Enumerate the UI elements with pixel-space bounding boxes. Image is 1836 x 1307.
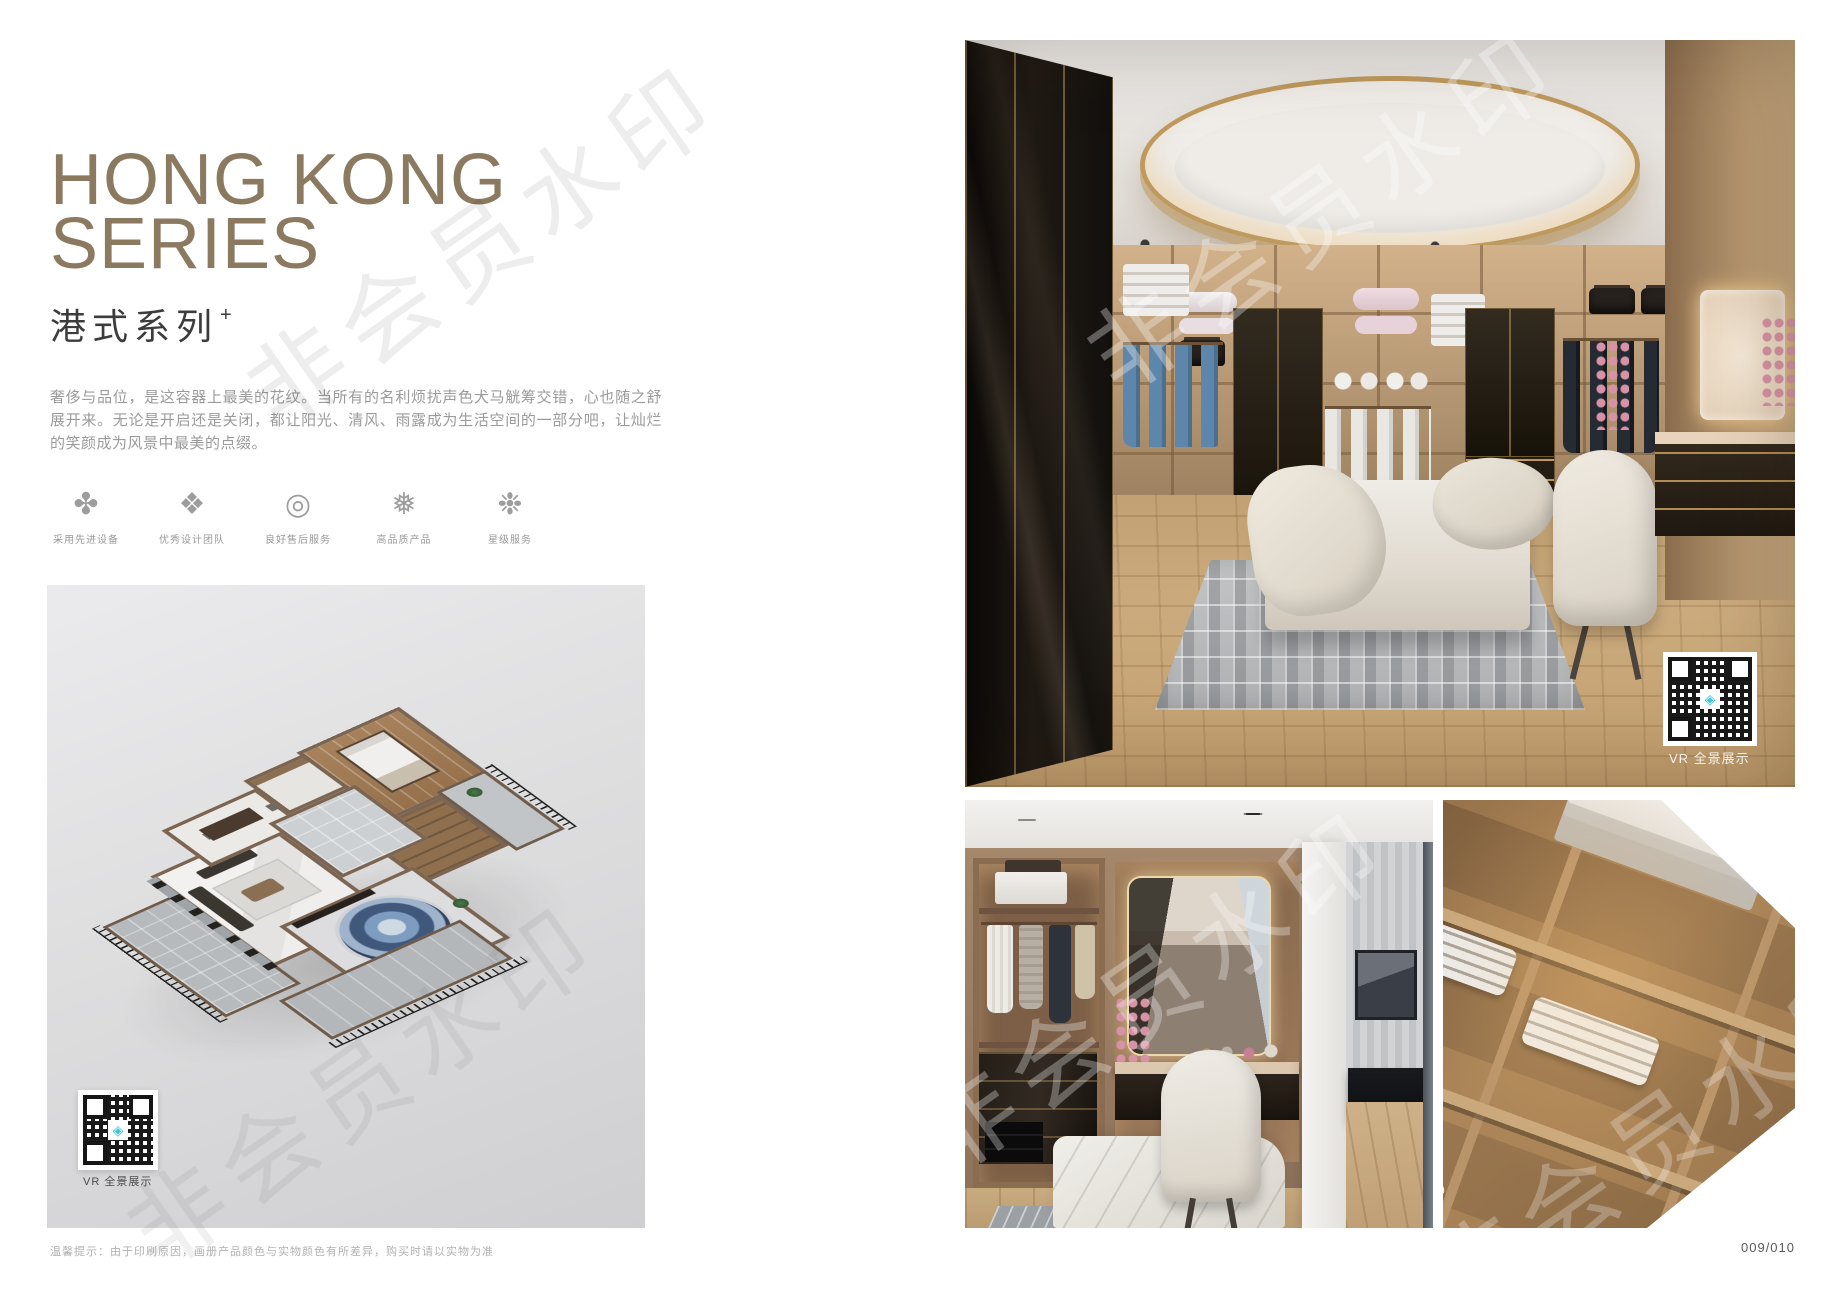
snowflake-icon: ❅ [368, 487, 440, 523]
print-disclaimer-note: 温馨提示：由于印刷原因，画册产品颜色与实物颜色有所差异，购买时请以实物为准 [50, 1243, 494, 1259]
qr-finder-icon [1728, 657, 1752, 681]
feature-label: 高品质产品 [368, 531, 440, 546]
floorplan-figure: ◈ VR 全景展示 [47, 585, 645, 1228]
feature-star-service: ❉ 星级服务 [474, 487, 546, 546]
white-storage-box [995, 872, 1067, 904]
series-subtitle-text: 港式系列 [50, 306, 218, 347]
vr-caption: VR 全景展示 [83, 1173, 152, 1189]
qr-cube-logo-icon: ◈ [108, 1120, 128, 1140]
feature-design-team: ❖ 优秀设计团队 [156, 487, 228, 546]
feature-label: 星级服务 [474, 531, 546, 546]
pink-flowers [1115, 996, 1151, 1066]
qr-finder-icon [83, 1141, 107, 1165]
qr-finder-icon [129, 1095, 153, 1119]
series-title-en-line1: HONG KONG [50, 148, 662, 212]
feature-equipment: ✤ 采用先进设备 [50, 487, 122, 546]
series-title-cn: 港式系列+ [50, 298, 662, 350]
catalog-page: HONG KONG SERIES 港式系列+ 奢侈与品位，是这容器上最美的花纹。… [0, 0, 1836, 1307]
feature-label: 采用先进设备 [50, 531, 122, 546]
page-number: 009/010 [1741, 1240, 1795, 1255]
diamond-ornament-icon: ❖ [156, 487, 228, 523]
photo-ceiling [965, 800, 1433, 848]
qr-pattern: ◈ [83, 1095, 153, 1165]
hanging-navy-garment [1049, 925, 1071, 1023]
glass-door-frame [1423, 842, 1433, 1228]
wardrobe-shelf [979, 908, 1099, 914]
vr-qr-code[interactable]: ◈ [1663, 652, 1757, 746]
series-description: 奢侈与品位，是这容器上最美的花纹。当所有的名利烦扰声色犬马觥筹交错，心也随之舒展… [50, 386, 662, 455]
series-title-en-line2: SERIES [50, 212, 662, 276]
framed-artwork [1355, 950, 1417, 1020]
qr-finder-icon [83, 1095, 107, 1119]
dressing-area-photo [965, 800, 1433, 1228]
feature-quality: ❅ 高品质产品 [368, 487, 440, 546]
qr-cube-logo-icon: ◈ [1700, 689, 1720, 709]
flourish-cross-icon: ✤ [50, 487, 122, 523]
hall-wood-floor [1346, 1102, 1433, 1228]
feature-label: 良好售后服务 [262, 531, 334, 546]
series-header: HONG KONG SERIES 港式系列+ 奢侈与品位，是这容器上最美的花纹。… [50, 148, 662, 546]
feature-label: 优秀设计团队 [156, 531, 228, 546]
qr-finder-icon [1668, 717, 1692, 741]
white-vanity-chair [1161, 1050, 1261, 1202]
black-storage-boxes [985, 1122, 1043, 1162]
vr-caption: VR 全景展示 [1669, 748, 1750, 767]
star-ornament-icon: ❉ [474, 487, 546, 523]
hanging-patterned-garment [1019, 925, 1043, 1009]
cloakroom-photo: ◈ VR 全景展示 [965, 40, 1795, 787]
plus-mark: + [220, 304, 232, 326]
vr-qr-code[interactable]: ◈ [78, 1090, 158, 1170]
feature-list: ✤ 采用先进设备 ❖ 优秀设计团队 ◎ 良好售后服务 ❅ 高品质产品 ❉ 星级服… [50, 487, 662, 546]
wardrobe-shelf [979, 1042, 1099, 1048]
hanging-white-blouse [987, 925, 1013, 1013]
hanging-tan-garment [1075, 925, 1095, 999]
circle-swirl-icon: ◎ [262, 487, 334, 523]
shelf-closeup-photo [1443, 800, 1795, 1228]
qr-pattern: ◈ [1668, 657, 1752, 741]
white-column [1302, 842, 1346, 1228]
feature-after-sales: ◎ 良好售后服务 [262, 487, 334, 546]
qr-finder-icon [1668, 657, 1692, 681]
